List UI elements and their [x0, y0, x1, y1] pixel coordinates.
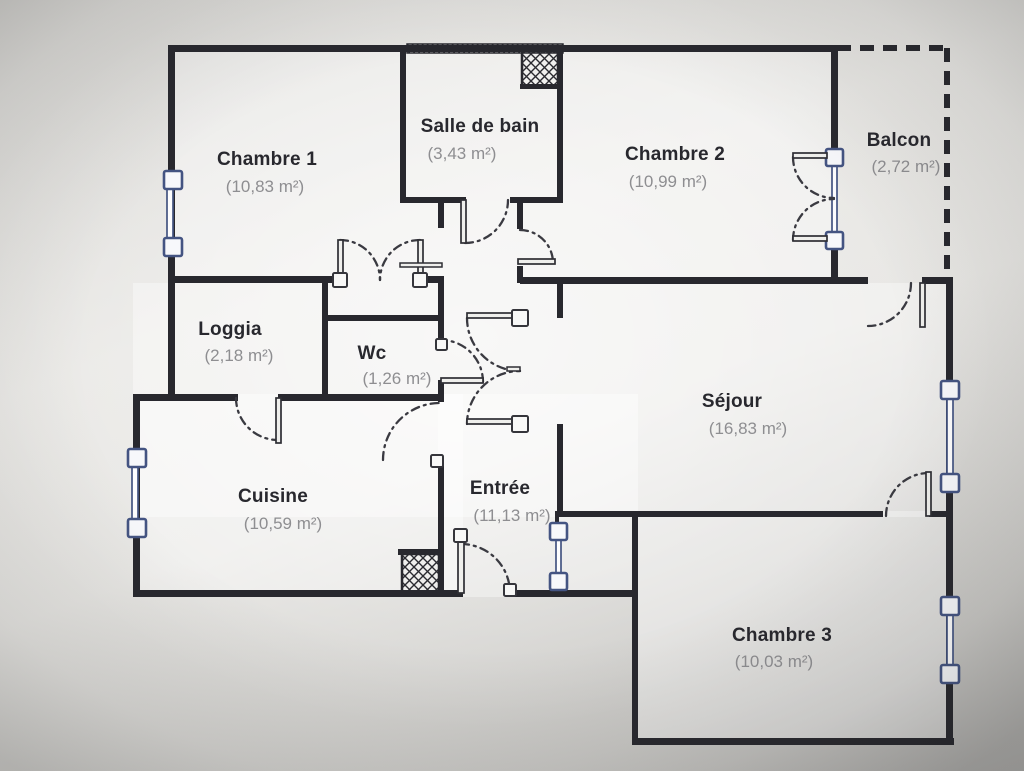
room-area: (1,26 m²) — [363, 369, 432, 388]
room-area: (2,18 m²) — [205, 346, 274, 365]
window-handle — [826, 232, 843, 249]
room-name: Séjour — [702, 391, 763, 412]
room-name: Chambre 2 — [625, 144, 725, 165]
wall-segment — [168, 283, 175, 400]
wall-segment — [557, 283, 563, 318]
room-name: Cuisine — [238, 486, 308, 507]
door-jamb-node — [333, 273, 347, 287]
room-name: Salle de bain — [421, 116, 540, 137]
room-area: (10,03 m²) — [735, 652, 813, 671]
wall-segment — [632, 738, 954, 745]
door-leaf — [458, 537, 464, 593]
wall-segment — [831, 45, 838, 150]
room-name: Wc — [358, 343, 387, 364]
screenshot-stage: Chambre 1 (10,83 m²) Salle de bain (3,43… — [0, 0, 1024, 771]
door-leaf — [926, 472, 931, 516]
wall-segment — [557, 48, 563, 203]
wall-segment — [438, 276, 444, 320]
wall-segment — [278, 394, 444, 401]
window-handle — [941, 597, 959, 615]
wall-segment — [438, 197, 444, 228]
wall-segment — [168, 276, 340, 283]
door-leaf — [441, 378, 483, 383]
door-leaf-tick — [507, 367, 520, 371]
duct-shaft — [522, 51, 558, 86]
door-leaf — [793, 236, 827, 241]
window-handle — [128, 449, 146, 467]
wall-segment — [400, 197, 466, 203]
door-jamb-node — [454, 529, 467, 542]
window-handle — [164, 171, 182, 189]
door-jamb-node — [512, 416, 528, 432]
room-name: Chambre 3 — [732, 625, 832, 646]
wall-segment — [520, 277, 868, 284]
wall-segment — [831, 247, 838, 283]
floor-plan: Chambre 1 (10,83 m²) Salle de bain (3,43… — [0, 0, 1024, 771]
room-label-balcon: Balcon (2,72 m²) — [867, 130, 941, 176]
door-jamb-node — [436, 339, 447, 350]
window-handle — [941, 665, 959, 683]
wall-segment — [520, 84, 560, 89]
door-leaf — [276, 398, 281, 443]
door-leaf — [920, 283, 925, 327]
door-jamb-node — [413, 273, 427, 287]
room-area: (16,83 m²) — [709, 419, 787, 438]
window-handle — [128, 519, 146, 537]
wall-segment — [168, 45, 837, 52]
room-name: Balcon — [867, 130, 932, 151]
wall-segment — [517, 266, 523, 283]
wall-segment — [168, 394, 238, 401]
door-leaf — [518, 259, 555, 264]
window-handle — [826, 149, 843, 166]
window-handle — [550, 573, 567, 590]
wall-segment — [557, 424, 563, 515]
door-leaf — [461, 200, 466, 243]
window-handle — [164, 238, 182, 256]
wall-segment — [398, 549, 444, 555]
room-area: (2,72 m²) — [872, 157, 941, 176]
wall-segment — [133, 590, 463, 597]
door-jamb-node — [512, 310, 528, 326]
room-area: (3,43 m²) — [428, 144, 497, 163]
wall-segment — [322, 283, 328, 397]
wall-segment — [512, 590, 638, 597]
wall-segment — [517, 203, 523, 229]
room-area: (10,83 m²) — [226, 177, 304, 196]
door-jamb-node — [504, 584, 516, 596]
room-name: Entrée — [470, 478, 530, 499]
window-handle — [550, 523, 567, 540]
duct-shaft — [402, 554, 439, 592]
wall-segment — [632, 511, 638, 745]
wall-segment — [557, 511, 883, 517]
door-jamb-node — [431, 455, 443, 467]
window-handle — [941, 474, 959, 492]
room-area: (11,13 m²) — [473, 506, 550, 525]
window-handle — [941, 381, 959, 399]
door-leaf — [793, 153, 827, 158]
door-leaf-tick — [400, 263, 442, 267]
room-area: (10,99 m²) — [629, 172, 707, 191]
room-name: Chambre 1 — [217, 149, 317, 170]
room-area: (10,59 m²) — [244, 514, 322, 533]
wall-segment — [510, 197, 563, 203]
wall-segment — [922, 277, 950, 284]
wall-segment — [438, 458, 444, 595]
wall-segment — [400, 48, 406, 199]
room-name: Loggia — [198, 319, 262, 340]
wall-segment — [322, 315, 444, 321]
